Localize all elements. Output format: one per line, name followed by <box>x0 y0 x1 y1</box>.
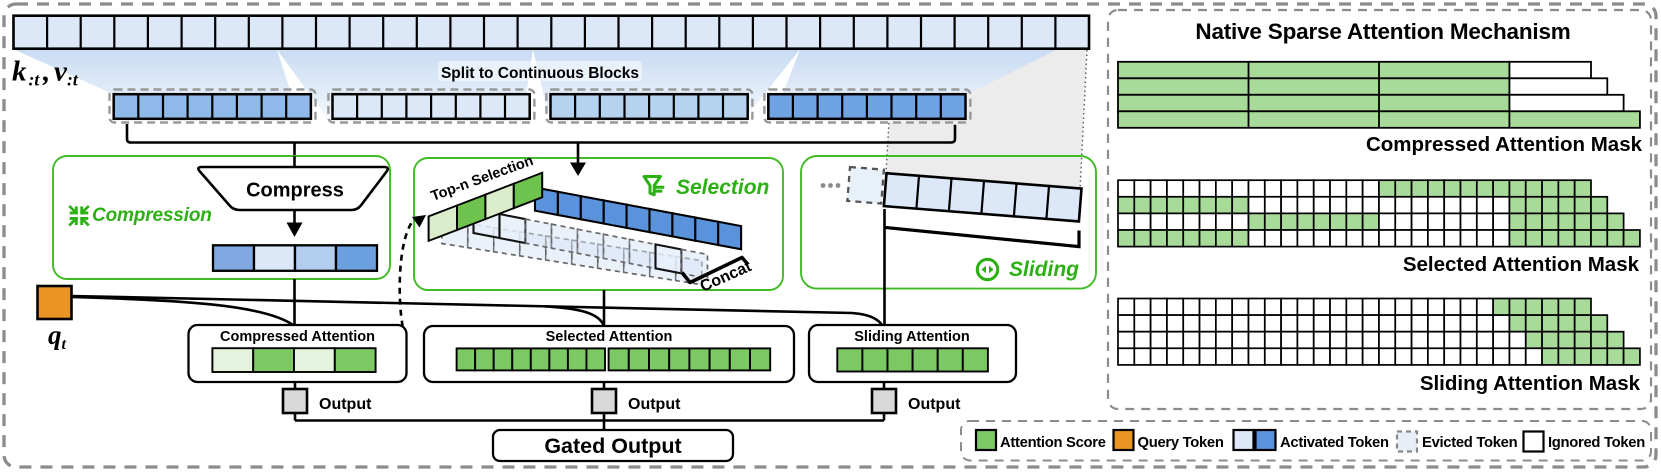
svg-text:Compression: Compression <box>92 205 212 226</box>
svg-text:Sliding Attention Mask: Sliding Attention Mask <box>1420 372 1641 395</box>
svg-text:Compressed Attention: Compressed Attention <box>220 329 375 345</box>
svg-text:Output: Output <box>319 396 372 413</box>
svg-text:Compressed Attention Mask: Compressed Attention Mask <box>1366 133 1643 156</box>
svg-text:Output: Output <box>628 396 681 413</box>
svg-text:Sliding Attention: Sliding Attention <box>854 329 969 345</box>
svg-text:Output: Output <box>908 396 961 413</box>
svg-text:Selected Attention Mask: Selected Attention Mask <box>1403 253 1640 276</box>
svg-text:Compress: Compress <box>246 180 344 202</box>
svg-text:Split to Continuous Blocks: Split to Continuous Blocks <box>441 65 639 82</box>
svg-text:Gated Output: Gated Output <box>544 434 681 458</box>
svg-text:Sliding: Sliding <box>1009 258 1079 281</box>
svg-text:Native Sparse Attention Mechan: Native Sparse Attention Mechanism <box>1195 19 1570 44</box>
svg-text:Query Token: Query Token <box>1138 435 1224 451</box>
svg-text:qt: qt <box>48 320 67 353</box>
svg-text:Ignored Token: Ignored Token <box>1548 435 1645 451</box>
svg-text:Activated Token: Activated Token <box>1280 435 1389 451</box>
svg-text::t: :t <box>29 70 41 90</box>
svg-text:Evicted Token: Evicted Token <box>1422 435 1518 451</box>
svg-text:Attention Score: Attention Score <box>1000 435 1106 451</box>
svg-text:Selected Attention: Selected Attention <box>546 329 673 345</box>
svg-text:v: v <box>54 56 68 88</box>
svg-text:k: k <box>12 56 27 88</box>
svg-text:Selection: Selection <box>676 176 769 199</box>
svg-text:,: , <box>42 56 50 88</box>
svg-text::t: :t <box>67 70 79 90</box>
